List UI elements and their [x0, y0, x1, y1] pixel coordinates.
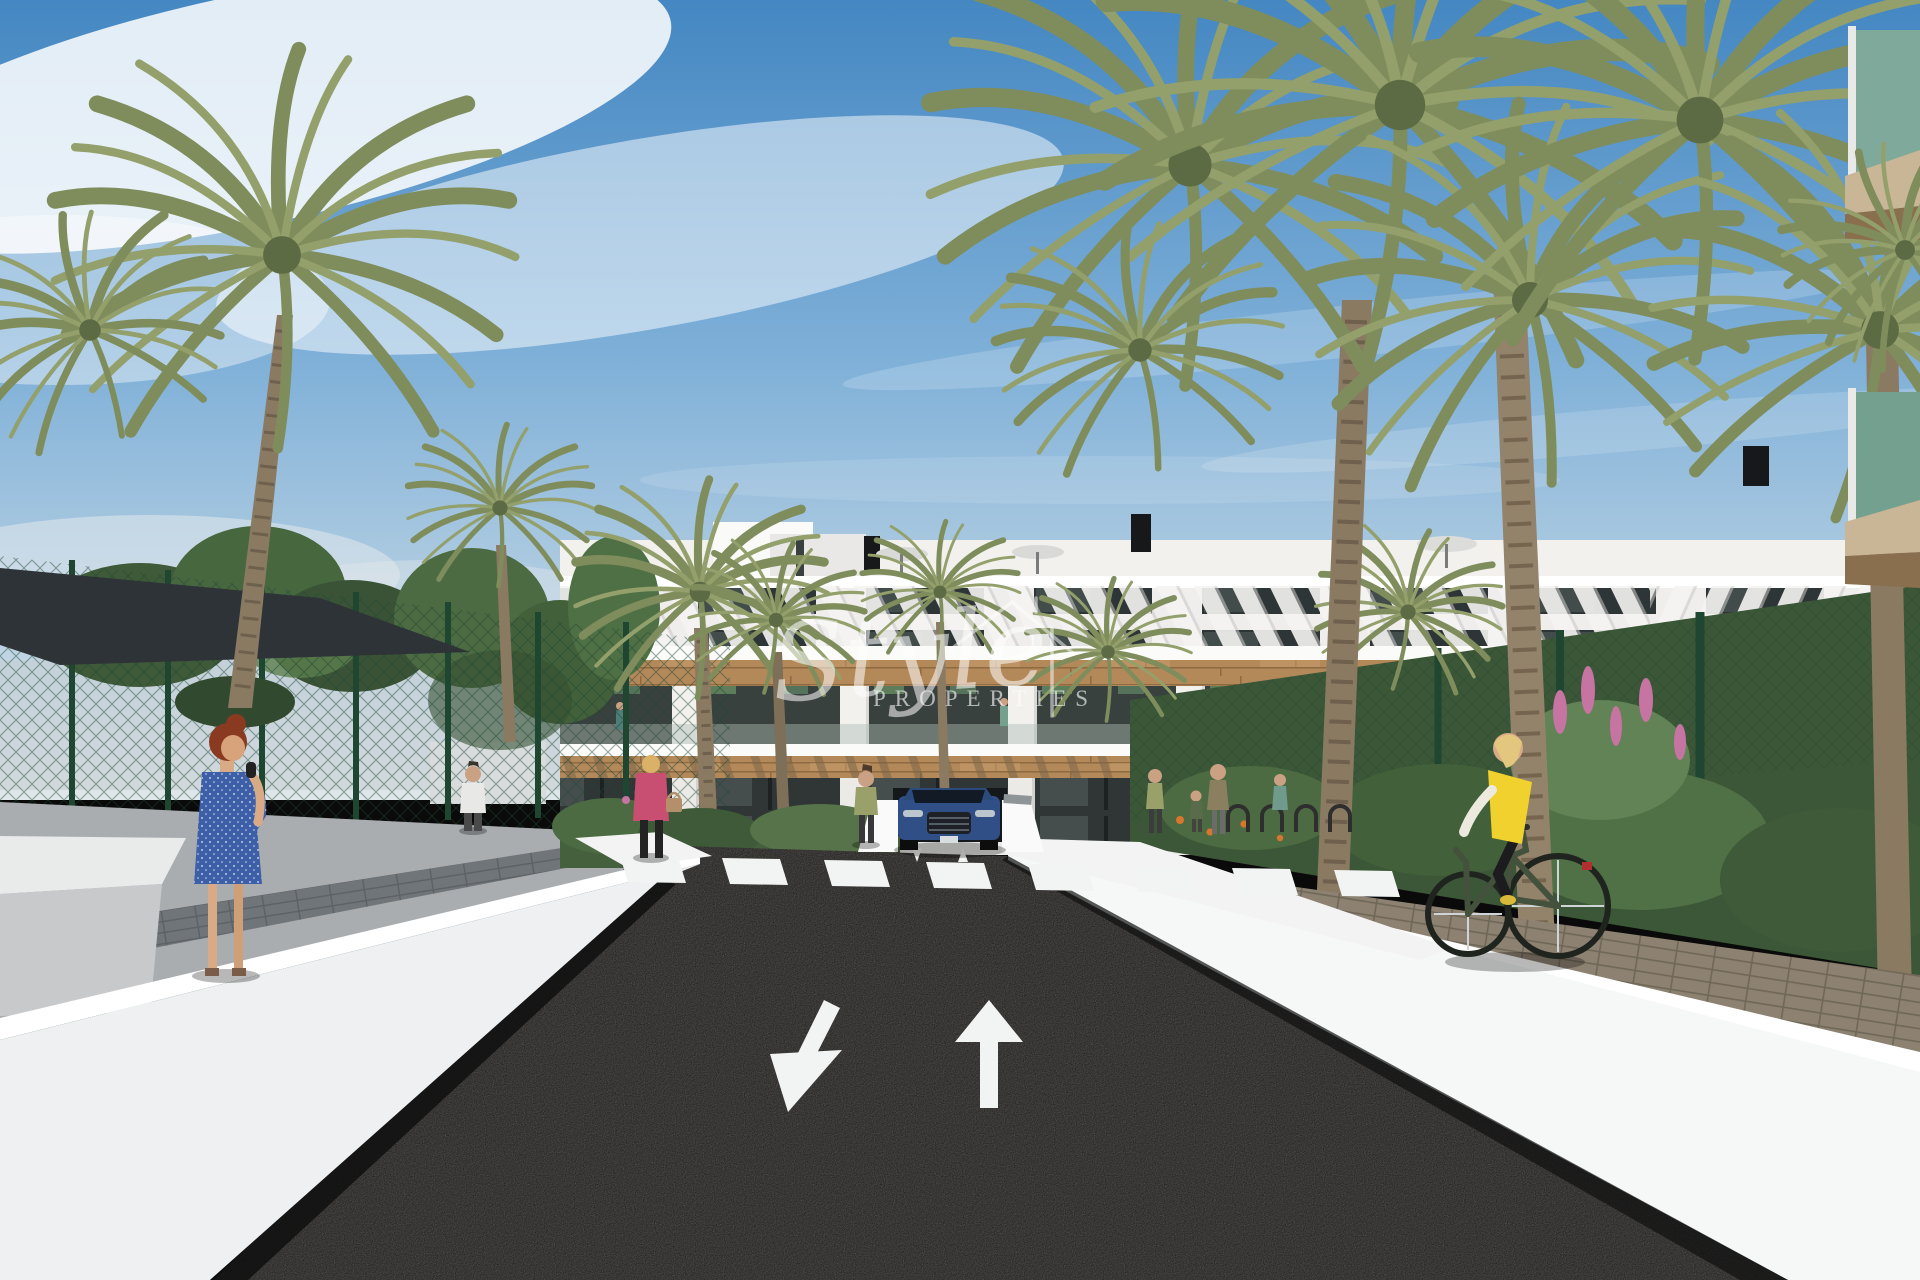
blonde-head: [642, 755, 660, 773]
shoe: [205, 968, 219, 976]
handbag: [666, 798, 682, 812]
scene-canvas: Style PROPERTIES: [0, 0, 1920, 1280]
leg: [640, 820, 648, 858]
person-shadow: [852, 841, 880, 849]
leg: [208, 880, 217, 972]
olive-top: [854, 787, 878, 815]
leg: [859, 815, 865, 843]
shorts-leg: [474, 813, 482, 831]
bike-reflector: [1582, 862, 1592, 870]
car-wheel-right: [980, 840, 998, 850]
crosswalk-stripe: [824, 860, 890, 887]
balcony-frame: [1848, 26, 1856, 182]
chimney: [1743, 446, 1769, 486]
white-tshirt: [460, 783, 486, 813]
shorts-leg: [464, 813, 472, 831]
car-wheel-left: [900, 840, 918, 850]
balcony-frame: [1848, 388, 1856, 528]
hair-bun: [226, 714, 246, 734]
head: [858, 771, 874, 787]
crosswalk-stripe: [1334, 870, 1400, 897]
pink-jacket: [633, 773, 669, 821]
head: [465, 766, 481, 782]
chimney: [1131, 514, 1151, 552]
leg: [234, 880, 243, 972]
car-headlight-right: [975, 810, 995, 817]
arrow-shaft: [980, 1038, 998, 1108]
person-shadow: [192, 969, 260, 983]
person-shadow: [459, 827, 487, 835]
crosswalk-stripe: [1130, 866, 1196, 893]
pedestrian: [1272, 774, 1288, 810]
person-shadow: [633, 853, 669, 863]
render-scene: Style PROPERTIES: [0, 0, 1920, 1280]
balcony-slab-underside: [1845, 552, 1920, 588]
leg: [655, 820, 663, 858]
cyclist-shoe: [1500, 895, 1516, 905]
shoe: [232, 968, 246, 976]
crosswalk-stripe: [926, 862, 992, 889]
car-headlight-left: [903, 810, 923, 817]
crosswalk-stripe: [1028, 864, 1094, 891]
crosswalk-stripe: [722, 858, 788, 885]
face: [221, 735, 245, 761]
car-windshield: [912, 790, 985, 803]
leg: [868, 815, 874, 843]
crosswalk-stripe: [1232, 868, 1298, 895]
phone: [246, 762, 256, 778]
watermark-subtitle: PROPERTIES: [873, 686, 1097, 711]
car-license-plate: [940, 836, 958, 843]
